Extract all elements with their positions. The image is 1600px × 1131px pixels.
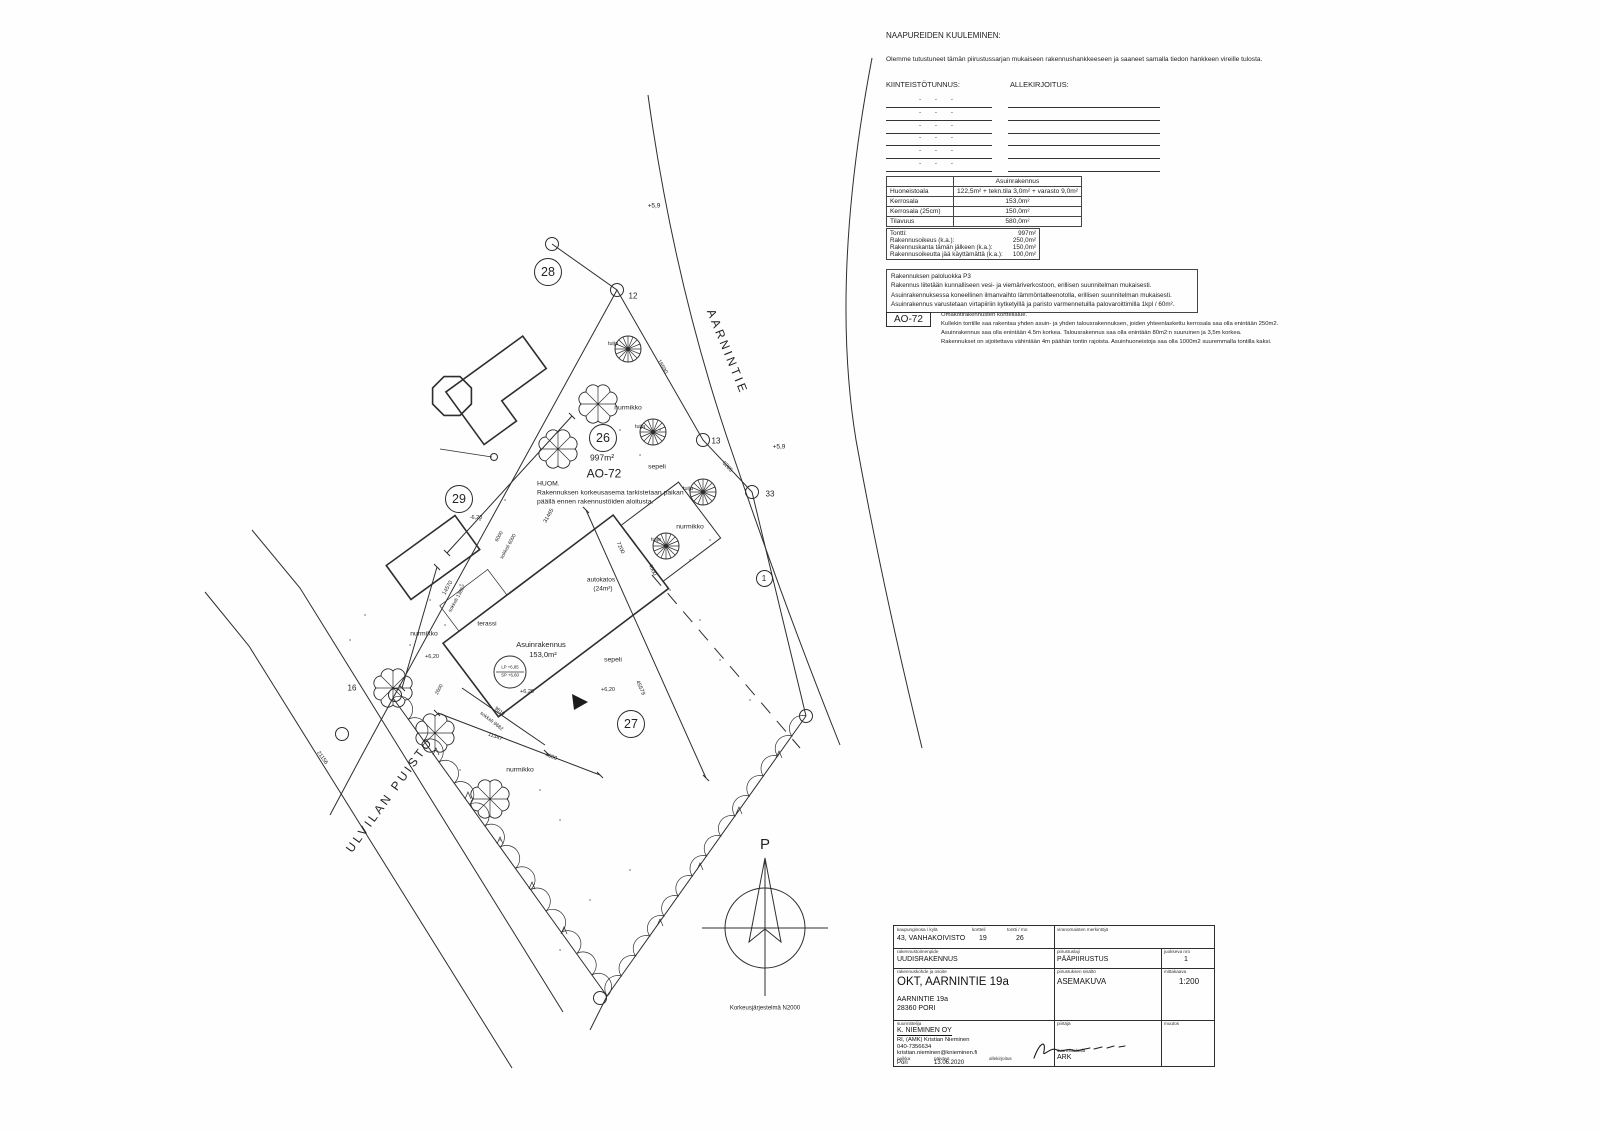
- designer-person: RI, (AMK) Kristian Nieminen: [897, 1037, 969, 1043]
- area-table-value: 150,0m²: [954, 207, 1082, 217]
- signature-line: [1008, 134, 1160, 146]
- label-piirtaja: piirtäjä: [1057, 1021, 1071, 1026]
- plot-figures-label: Rakennuskanta tämän jälkeen (k.a.):: [890, 244, 993, 251]
- address-line1: AARNINTIE 19a: [897, 996, 948, 1003]
- property-id-line: - - -: [886, 109, 992, 121]
- zoning-line: Asuinrakennus saa olla enintään 4.5m kor…: [941, 329, 1281, 338]
- label-piirustuslaji: piirustuslaji: [1057, 949, 1080, 954]
- property-id-column-label: KIINTEISTÖTUNNUS:: [886, 80, 960, 89]
- area-table-row: Huoneistoala122,5m² + tekn.tila 3,0m² + …: [887, 187, 1082, 197]
- plan-label: AO-72: [587, 467, 622, 480]
- address-line2: 28360 PORI: [897, 1005, 936, 1012]
- plan-label: -6,20: [470, 515, 483, 521]
- plan-label: terassi: [477, 620, 496, 627]
- action-value: UUDISRAKENNUS: [897, 956, 958, 963]
- note-line: Asuinrakennuksessa koneellinen ilmanvaih…: [891, 291, 1193, 300]
- note-line: Rakennus liitetään kunnalliseen vesi- ja…: [891, 281, 1193, 290]
- area-table-label: Tilavuus: [887, 217, 954, 227]
- plot-value: 26: [1016, 935, 1024, 942]
- date-value: 13.06.2020: [934, 1060, 964, 1066]
- project-title: OKT, AARNINTIE 19a: [897, 976, 1009, 988]
- designer-company: K. NIEMINEN OY: [897, 1027, 952, 1036]
- plot-figures-box: Tontti:997m²Rakennusoikeus (k.a.):250,0m…: [886, 228, 1040, 260]
- label-muutos: muutos: [1164, 1021, 1179, 1026]
- label-allekirjoitus: allekirjoitus: [989, 1056, 1012, 1061]
- plan-label: +6,20: [520, 689, 534, 695]
- area-table-value: 580,0m²: [954, 217, 1082, 227]
- zoning-line: Omakotirakennusten korttelialue.: [941, 311, 1281, 320]
- plan-label: päällä ennen rakennustöiden aloitusta.: [537, 498, 653, 505]
- plan-label: nurmikko: [506, 766, 534, 773]
- plan-label: tuija: [635, 424, 645, 430]
- plan-label: 33: [766, 491, 775, 500]
- running-number-value: 1: [1184, 956, 1188, 963]
- plot-figures-value: 997m²: [1018, 230, 1036, 237]
- plot-number-28: 28: [534, 258, 562, 286]
- plot-figures-value: 150,0m²: [1013, 244, 1036, 251]
- plot-number-1: 1: [756, 570, 773, 587]
- signature-line: [1008, 147, 1160, 159]
- plan-label: sepeli: [604, 656, 622, 663]
- octagon-structure: [433, 377, 472, 416]
- label-juokseva-nro: juokseva nro: [1164, 949, 1190, 954]
- property-id-line: - - -: [886, 122, 992, 134]
- plan-label: tuija: [683, 486, 693, 492]
- plan-label: nurmikko: [614, 404, 642, 411]
- plot-figures-label: Rakennusoikeus (k.a.):: [890, 237, 954, 244]
- plan-label: Asuinrakennus: [516, 641, 566, 649]
- neighbors-intro: Olemme tutustuneet tämän piirustussarjan…: [886, 56, 1276, 63]
- drawing-sheet: AARNINTIEULVILAN PUISTO997m²AO-72HUOM.Ra…: [0, 0, 1600, 1131]
- label-tontti: tontti / rno: [1007, 927, 1027, 932]
- plan-label: 16: [348, 685, 357, 694]
- plan-label: 997m²: [590, 453, 614, 462]
- plot-number-29: 29: [445, 485, 473, 513]
- plan-label: 12: [629, 293, 638, 302]
- label-suunnittelija: suunnittelija: [897, 1021, 921, 1026]
- area-table-row: Tilavuus580,0m²: [887, 217, 1082, 227]
- plan-label: autokatos: [587, 576, 615, 583]
- site-plan-drawing: [0, 0, 1600, 1131]
- plan-label: +6,20: [601, 687, 615, 693]
- plan-label: 153,0m²: [529, 651, 557, 659]
- entrance-marker: [572, 694, 588, 710]
- plan-label: HUOM.: [537, 480, 560, 487]
- signature-line: [1008, 122, 1160, 134]
- notes-box: Rakennuksen paloluokka P3Rakennus liitet…: [886, 269, 1198, 313]
- label-authority-marks: viranomaisten merkintöjä: [1057, 927, 1108, 932]
- property-id-line: - - -: [886, 147, 992, 159]
- plot-figures-label: Rakennusoikeutta jää käyttämättä (k.a.):: [890, 251, 1003, 258]
- scale-value: 1:200: [1179, 977, 1199, 986]
- drawing-content-value: ASEMAKUVA: [1057, 977, 1106, 986]
- area-table-header-row: Asuinrakennus: [887, 177, 1082, 187]
- label-toimenpide: rakennustoimenpide: [897, 949, 938, 954]
- plot-figures-value: 250,0m²: [1013, 237, 1036, 244]
- road-aarnintie: [648, 58, 922, 748]
- district-value: 43, VANHAKOIVISTO: [897, 935, 965, 942]
- plan-label: Korkeusjärjestelmä N2000: [730, 1006, 800, 1013]
- flag-line: [440, 449, 492, 457]
- plot-figures-label: Tontti:: [890, 230, 907, 237]
- block-value: 19: [979, 935, 987, 942]
- plan-label: +6,20: [425, 654, 439, 660]
- plan-label: +5,9: [648, 202, 661, 209]
- plot-figures-row: Rakennusoikeutta jää käyttämättä (k.a.):…: [890, 251, 1036, 258]
- note-line: Asuinrakennus varustetaan virtapiiriin k…: [891, 300, 1193, 309]
- property-id-line: - - -: [886, 96, 992, 108]
- plot-figures-value: 100,0m²: [1013, 251, 1036, 258]
- drawing-type-value: PÄÄPIIRUSTUS: [1057, 956, 1108, 963]
- plan-label: nurmikko: [410, 630, 438, 637]
- area-table-value: 122,5m² + tekn.tila 3,0m² + varasto 9,0m…: [954, 187, 1082, 197]
- signature-line: [1008, 160, 1160, 172]
- plot-figures-row: Rakennuskanta tämän jälkeen (k.a.):150,0…: [890, 244, 1036, 251]
- building-plot-28: [446, 336, 561, 444]
- area-table-value: 153,0m²: [954, 197, 1082, 207]
- plan-label: 13: [712, 438, 721, 447]
- plot-number-26: 26: [589, 424, 617, 452]
- property-id-line: - - -: [886, 160, 992, 172]
- area-table-row: Kerrosala (25cm)150,0m²: [887, 207, 1082, 217]
- plan-label: tuija: [651, 537, 661, 543]
- plot-figures-row: Rakennusoikeus (k.a.):250,0m²: [890, 237, 1036, 244]
- signature-line: [1008, 96, 1160, 108]
- place-value: Pori: [897, 1060, 908, 1066]
- signature: [1030, 1038, 1140, 1064]
- plot-figures-row: Tontti:997m²: [890, 230, 1036, 237]
- plot-number-27: 27: [617, 710, 645, 738]
- area-table-row: Kerrosala153,0m²: [887, 197, 1082, 207]
- zoning-line: Kullekin tontille saa rakentaa yhden asu…: [941, 320, 1281, 329]
- note-line: Rakennuksen paloluokka P3: [891, 272, 1193, 281]
- area-table-header: Asuinrakennus: [954, 177, 1082, 187]
- signature-line: [1008, 109, 1160, 121]
- label-kortteli: kortteli: [972, 927, 986, 932]
- plan-label: P: [760, 837, 770, 854]
- label-mittakaava: mittakaava: [1164, 969, 1186, 974]
- plan-label: LP +6,85: [501, 666, 518, 671]
- area-table-label: Kerrosala: [887, 197, 954, 207]
- signature-column-label: ALLEKIRJOITUS:: [1010, 80, 1069, 89]
- plan-label: Rakennuksen korkeusasema tarkistetaan pa…: [537, 489, 684, 496]
- area-table-label: Huoneistoala: [887, 187, 954, 197]
- plan-label: (24m²): [593, 585, 612, 592]
- zoning-text: Omakotirakennusten korttelialue.Kullekin…: [941, 311, 1281, 348]
- plan-label: nurmikko: [676, 523, 704, 530]
- plan-label: SP +6,60: [501, 674, 519, 679]
- property-id-line: - - -: [886, 134, 992, 146]
- plan-label: tuija: [608, 341, 618, 347]
- main-building: [424, 446, 726, 717]
- plot-boundary: [330, 238, 813, 1031]
- plan-label: sepeli: [648, 463, 666, 470]
- area-table-label: Kerrosala (25cm): [887, 207, 954, 217]
- zoning-line: Rakennukset on sijoitettava vähintään 4m…: [941, 338, 1281, 347]
- area-table-corner-cell: [887, 177, 954, 187]
- plan-label: +5,9: [773, 443, 786, 450]
- label-sisalto: piirustuksen sisältö: [1057, 969, 1096, 974]
- label-kohde: rakennuskohde ja osoite: [897, 969, 947, 974]
- zoning-code-badge: AO-72: [886, 312, 931, 327]
- label-kaupunginosa: kaupunginosa / kylä: [897, 927, 938, 932]
- neighbors-title: NAAPUREIDEN KUULEMINEN:: [886, 31, 1001, 40]
- area-table: Asuinrakennus Huoneistoala122,5m² + tekn…: [886, 176, 1082, 227]
- north-arrow: [702, 858, 828, 996]
